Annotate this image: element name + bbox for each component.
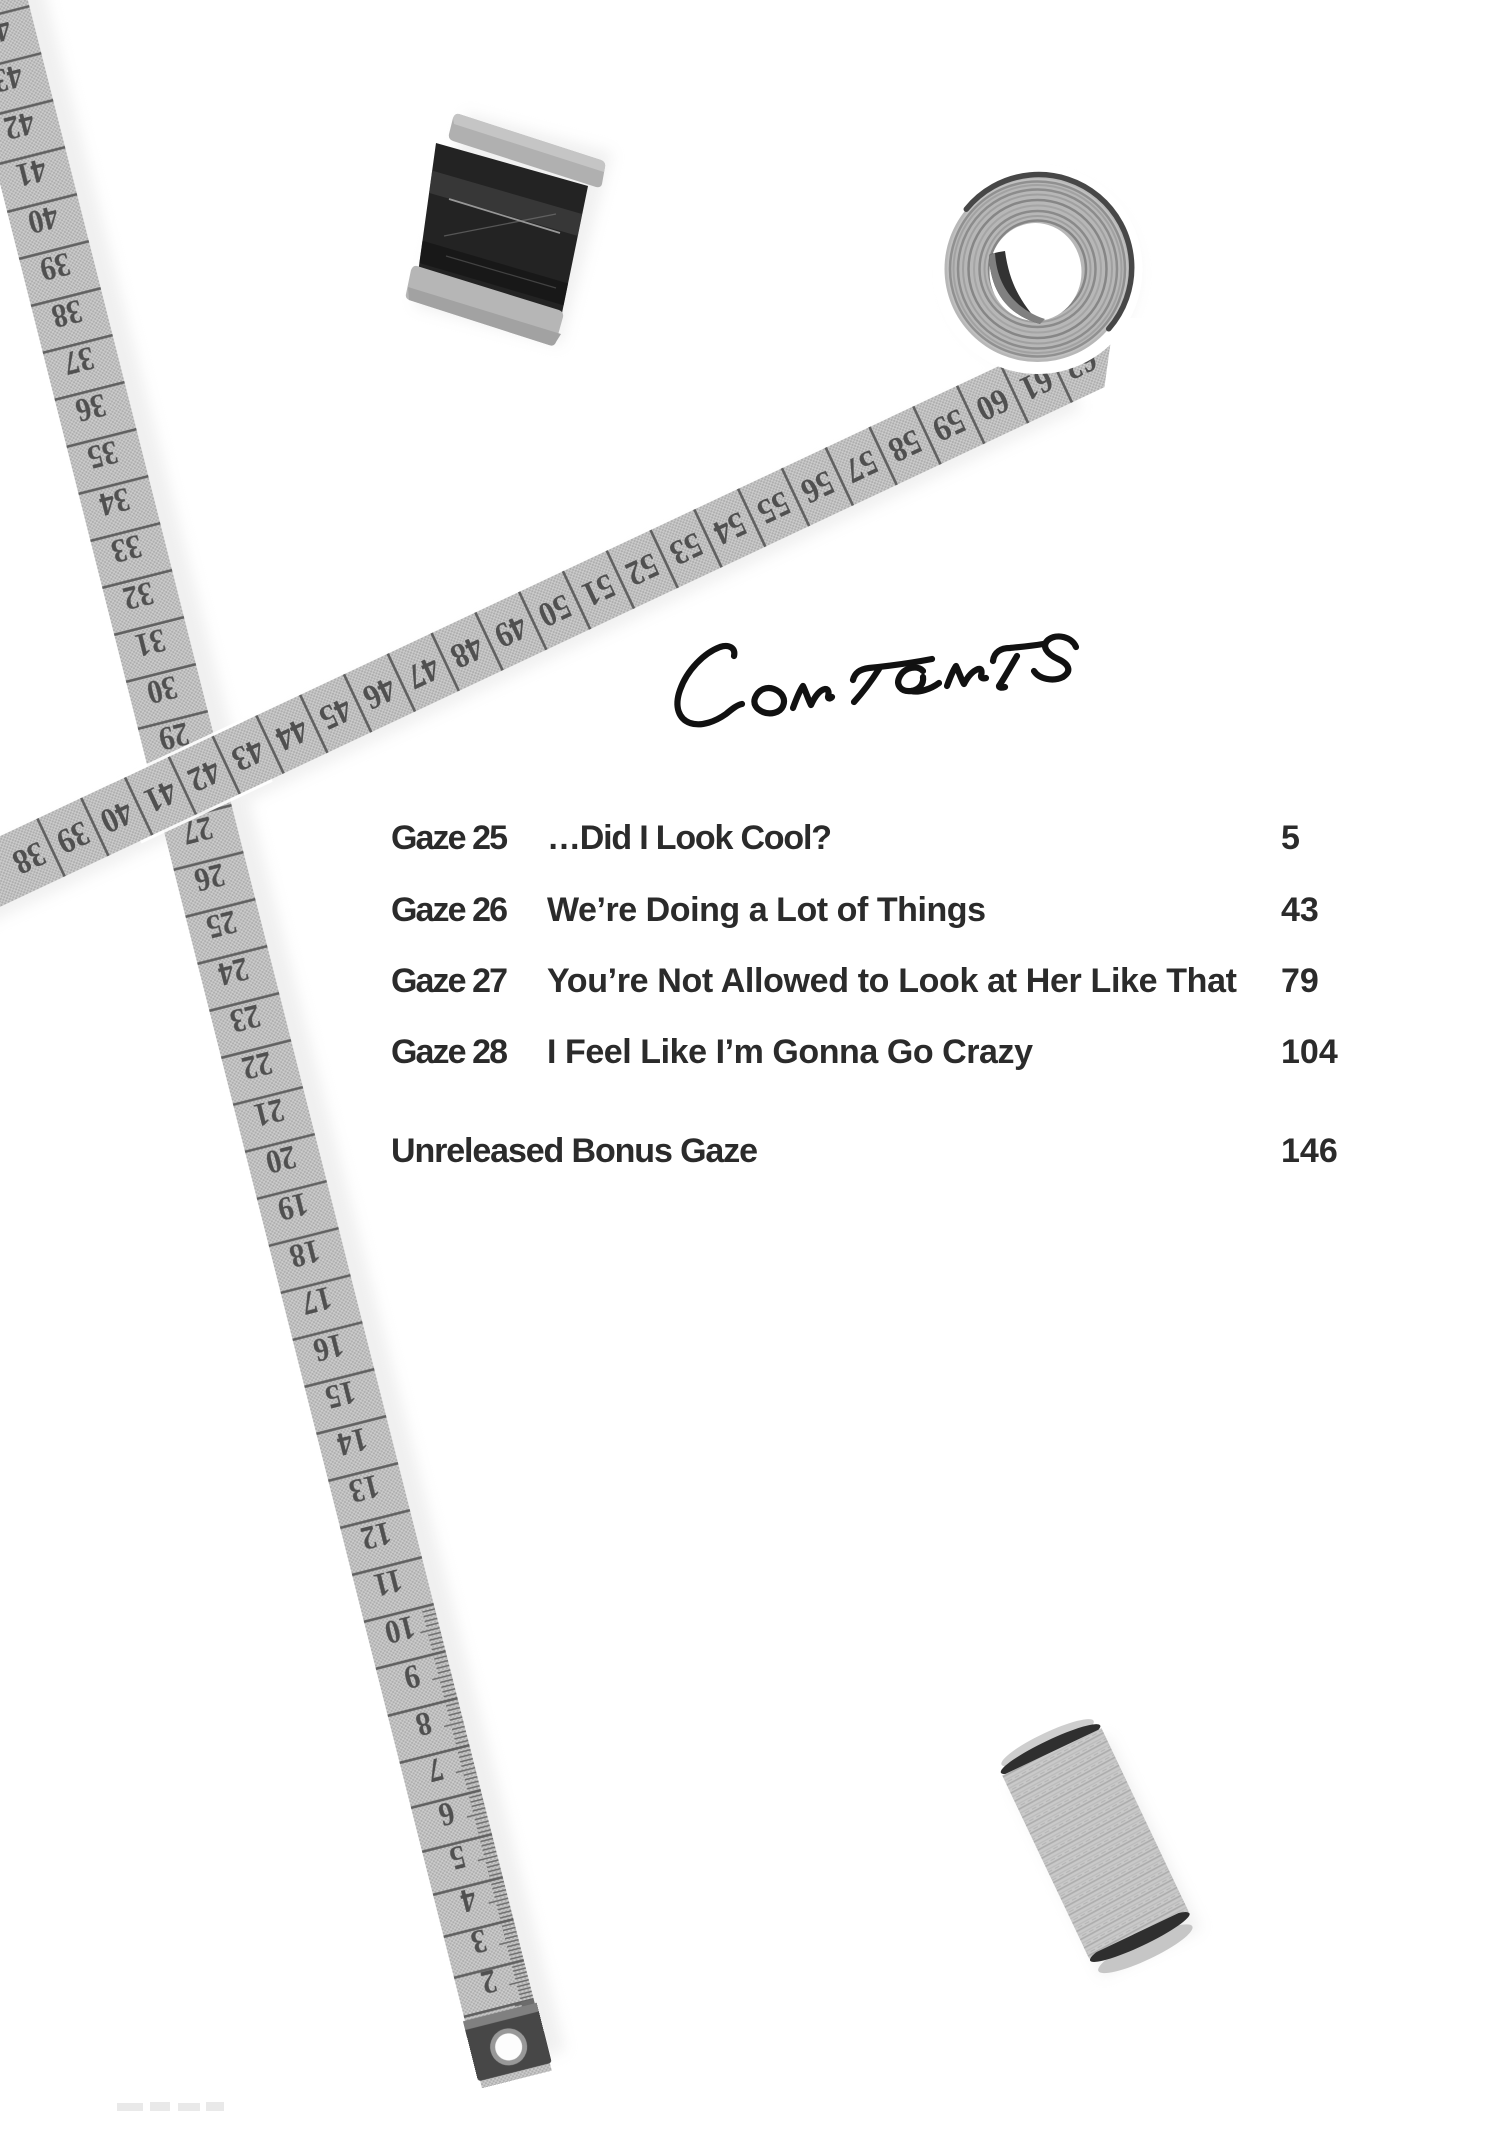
svg-text:146: 146: [1281, 1132, 1338, 1170]
svg-text:Gaze 26: Gaze 26: [391, 891, 508, 929]
svg-text:79: 79: [1281, 962, 1319, 1000]
svg-text:You’re Not Allowed to Look at: You’re Not Allowed to Look at Her Like T…: [547, 962, 1237, 1000]
svg-text:Gaze 28: Gaze 28: [391, 1033, 508, 1071]
svg-text:Gaze 25: Gaze 25: [391, 819, 508, 857]
svg-text:I Feel Like I’m Gonna Go Crazy: I Feel Like I’m Gonna Go Crazy: [547, 1033, 1033, 1071]
svg-text:Unreleased Bonus Gaze: Unreleased Bonus Gaze: [391, 1132, 758, 1170]
svg-text:104: 104: [1281, 1033, 1338, 1071]
svg-text:Gaze 27: Gaze 27: [391, 962, 508, 1000]
svg-text:…Did I Look Cool?: …Did I Look Cool?: [547, 819, 832, 857]
svg-text:43: 43: [1281, 891, 1319, 929]
svg-text:We’re Doing a Lot of Things: We’re Doing a Lot of Things: [547, 891, 986, 929]
svg-text:5: 5: [1281, 819, 1300, 857]
